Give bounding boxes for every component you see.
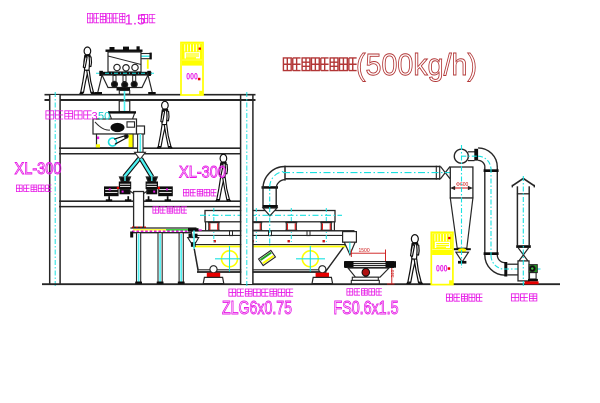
svg-text:ZLG6x0.75: ZLG6x0.75	[222, 298, 292, 318]
svg-text:FS0.6x1.5: FS0.6x1.5	[334, 298, 399, 318]
svg-text:1500: 1500	[359, 248, 370, 254]
svg-text:1.5: 1.5	[125, 11, 146, 28]
svg-text:XL-300: XL-300	[179, 163, 226, 182]
svg-text:000: 000	[186, 72, 198, 83]
svg-text:50: 50	[98, 110, 110, 122]
svg-text:XL-300: XL-300	[15, 159, 62, 178]
svg-text:(500kg/h): (500kg/h)	[356, 47, 477, 82]
svg-text:3: 3	[92, 110, 98, 122]
svg-text:000: 000	[436, 264, 448, 275]
svg-text:Φ600: Φ600	[456, 182, 469, 188]
svg-text:340: 340	[390, 269, 395, 277]
